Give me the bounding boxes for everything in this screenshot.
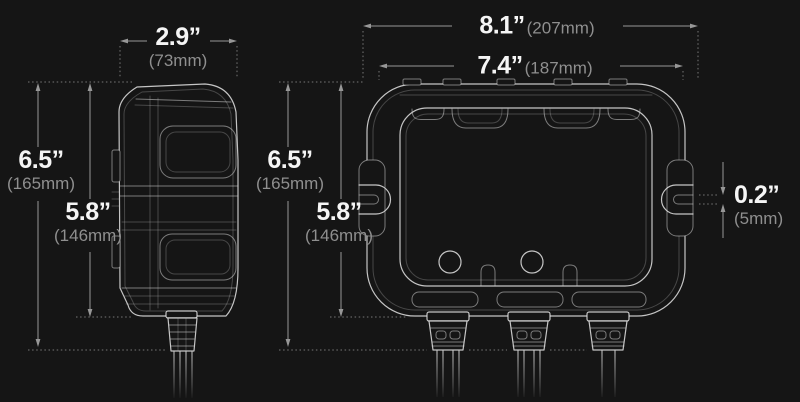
slot-width-mm: (5mm) xyxy=(734,208,783,229)
front-height-overall-inches: 6.5” xyxy=(267,148,312,173)
cable-gland-right xyxy=(587,312,629,350)
cable-gland-left xyxy=(427,312,469,350)
front-cables xyxy=(437,350,615,397)
top-tab xyxy=(403,79,421,85)
side-height-body-label: 5.8” (146mm) xyxy=(54,200,122,246)
front-width-overall-inches: 8.1” xyxy=(479,13,524,38)
side-cable xyxy=(174,351,192,398)
slot-width-label: 0.2” (5mm) xyxy=(734,183,783,229)
top-tab xyxy=(609,79,627,85)
side-height-overall-mm: (165mm) xyxy=(7,173,75,194)
front-height-overall-mm: (165mm) xyxy=(256,173,324,194)
front-height-body-inches: 5.8” xyxy=(316,200,361,225)
front-height-body-mm: (146mm) xyxy=(305,225,373,246)
side-height-body-mm: (146mm) xyxy=(54,225,122,246)
front-view-wireframe xyxy=(359,79,693,397)
side-height-overall-inches: 6.5” xyxy=(18,148,63,173)
front-width-overall-mm: (207mm) xyxy=(527,17,595,38)
front-width-body-inches: 7.4” xyxy=(477,53,522,78)
top-tab xyxy=(554,79,572,85)
right-mount-boss xyxy=(667,160,693,236)
front-height-overall-label: 6.5” (165mm) xyxy=(256,148,324,194)
side-width-label: 2.9” (73mm) xyxy=(149,25,208,71)
side-strain-relief-collar xyxy=(166,311,197,318)
slot-width-inches: 0.2” xyxy=(734,183,779,208)
front-width-body-label: 7.4” (187mm) xyxy=(477,53,592,78)
cable-gland-center xyxy=(508,312,550,350)
side-view-wireframe xyxy=(112,84,238,398)
side-body-outline xyxy=(119,84,238,316)
side-height-body-inches: 5.8” xyxy=(65,200,110,225)
dimension-diagram: 2.9” (73mm) 8.1” (207mm) 7.4” (187mm) 6.… xyxy=(0,0,800,402)
side-mount-tab-upper xyxy=(112,150,120,182)
front-width-body-mm: (187mm) xyxy=(525,57,593,78)
front-width-overall-label: 8.1” (207mm) xyxy=(479,13,594,38)
top-tab xyxy=(443,79,461,85)
side-width-mm: (73mm) xyxy=(149,50,208,71)
side-height-overall-label: 6.5” (165mm) xyxy=(7,148,75,194)
top-tab xyxy=(497,79,515,85)
front-height-body-label: 5.8” (146mm) xyxy=(305,200,373,246)
side-width-inches: 2.9” xyxy=(155,25,200,50)
